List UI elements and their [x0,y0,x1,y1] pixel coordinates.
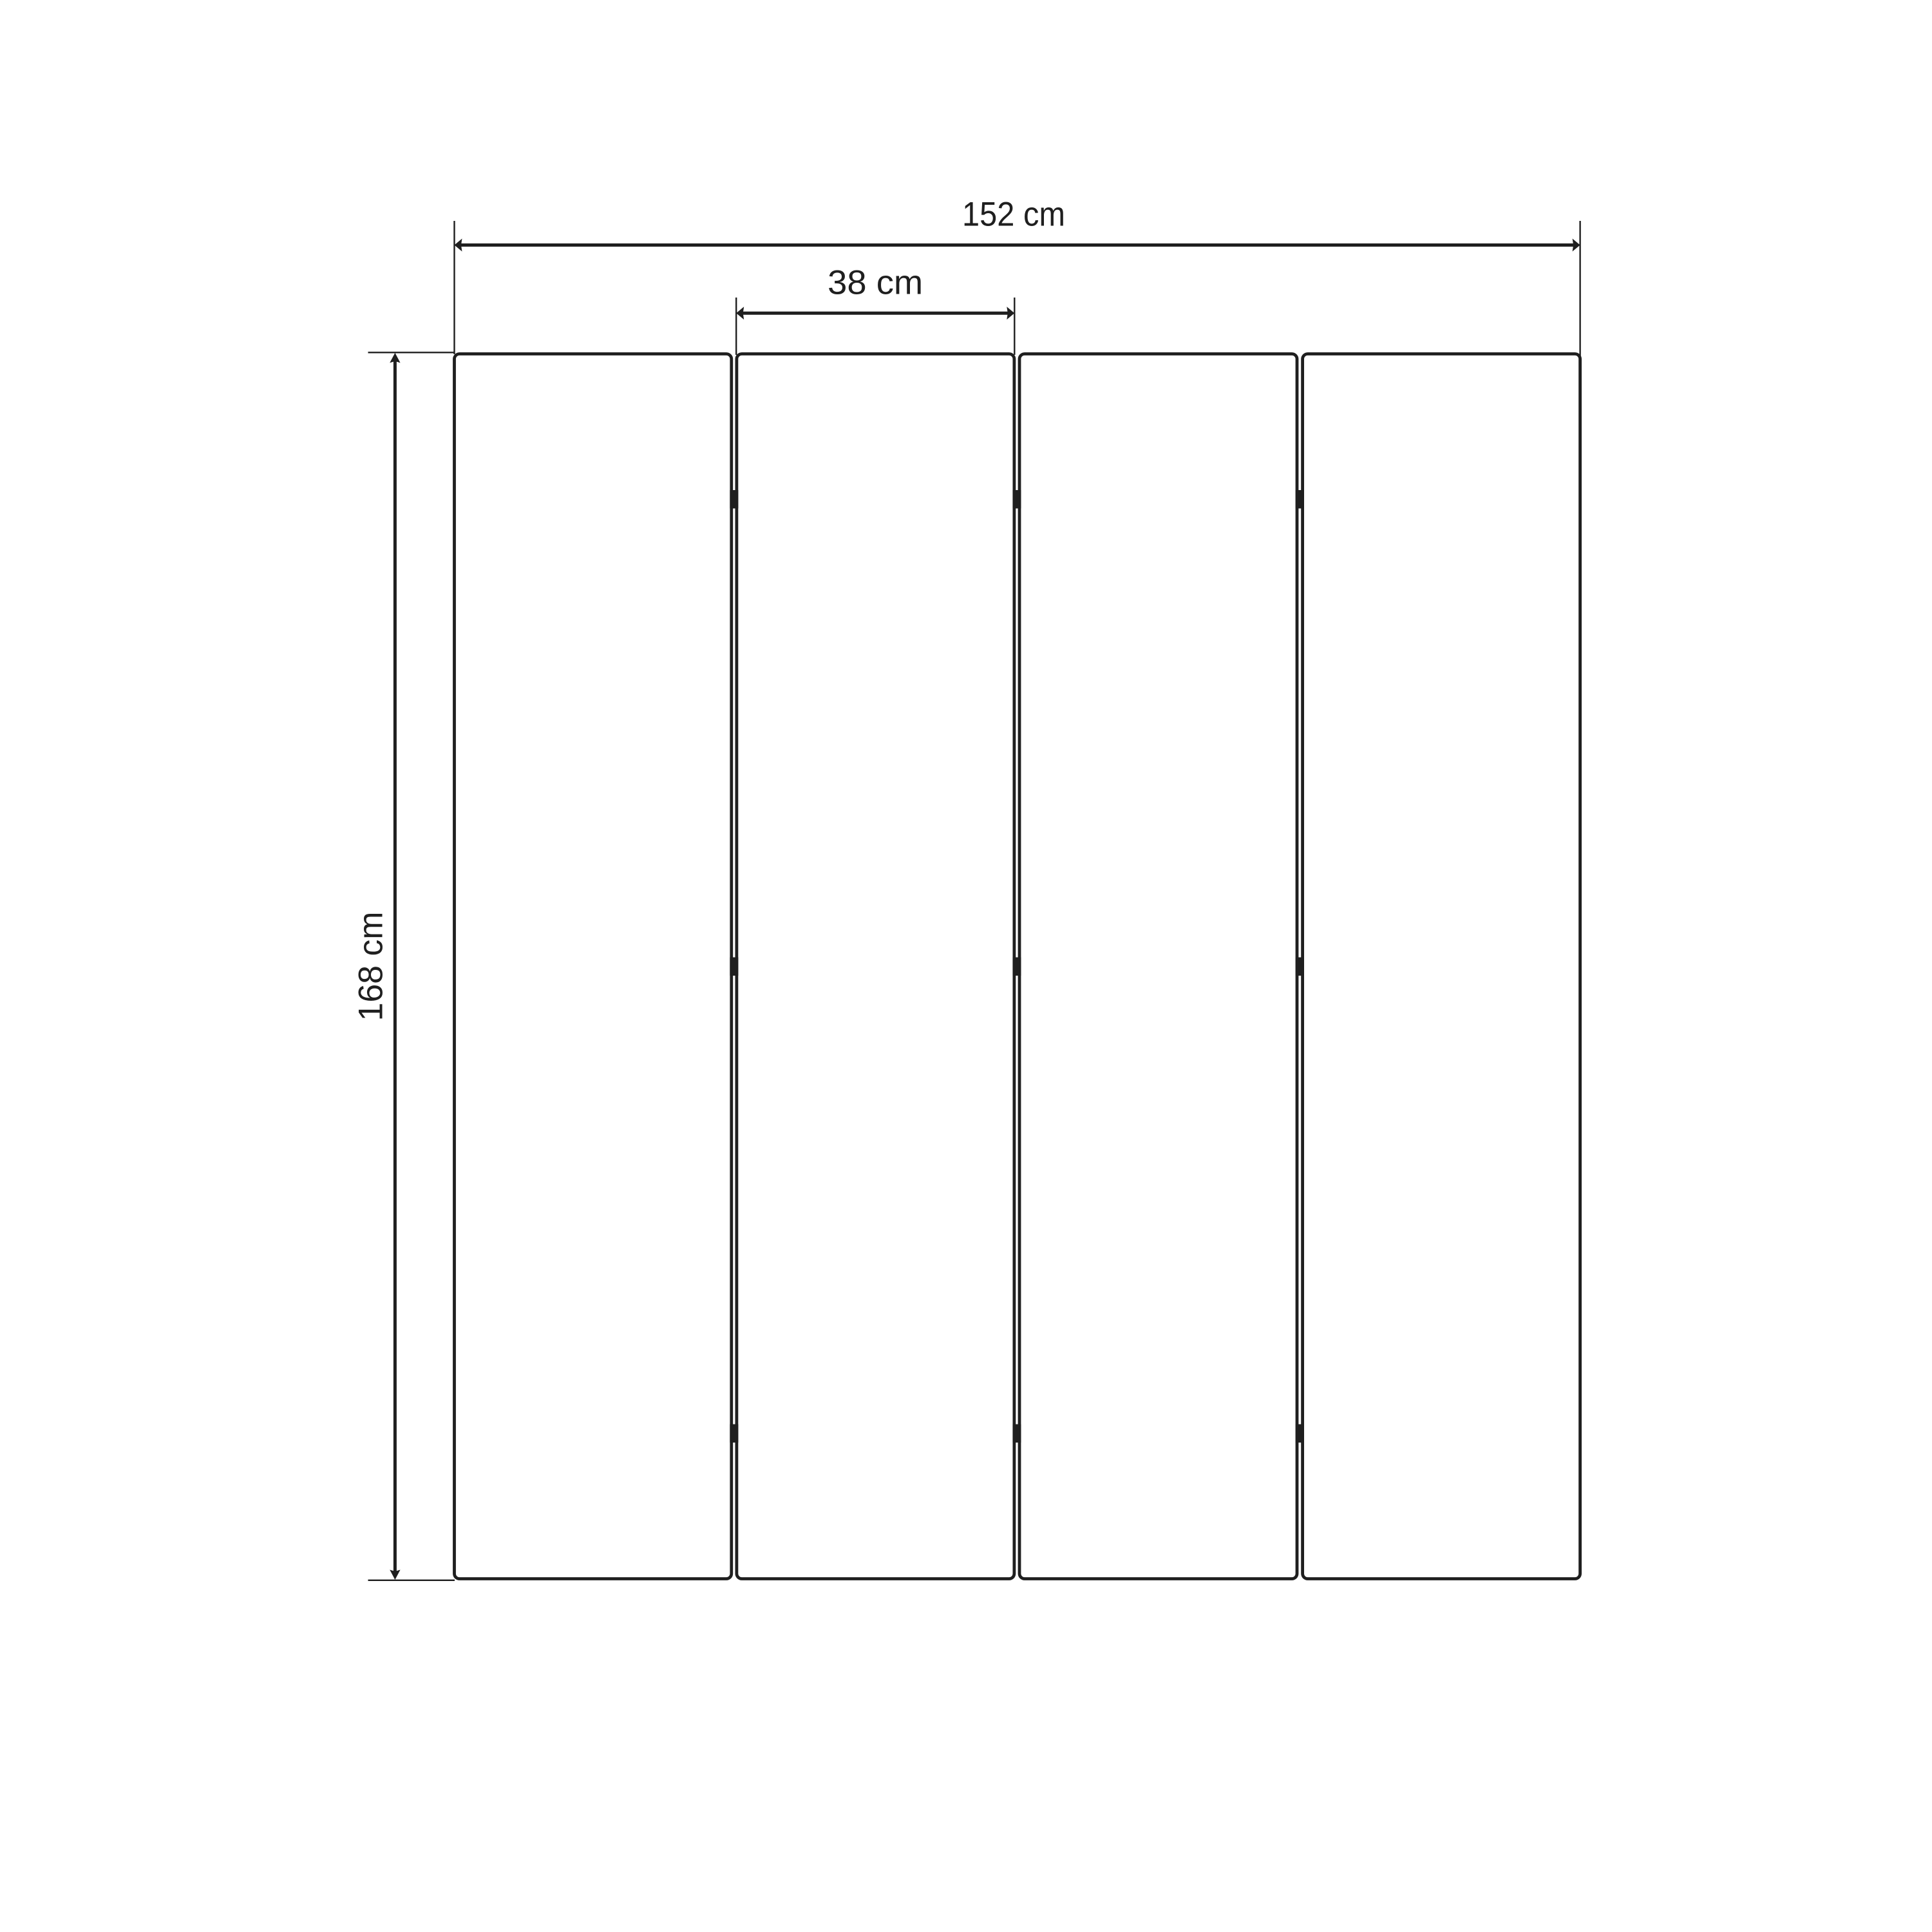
svg-text:168 cm: 168 cm [352,912,390,1021]
svg-text:152 cm: 152 cm [962,196,1065,234]
svg-text:38 cm: 38 cm [828,264,923,302]
